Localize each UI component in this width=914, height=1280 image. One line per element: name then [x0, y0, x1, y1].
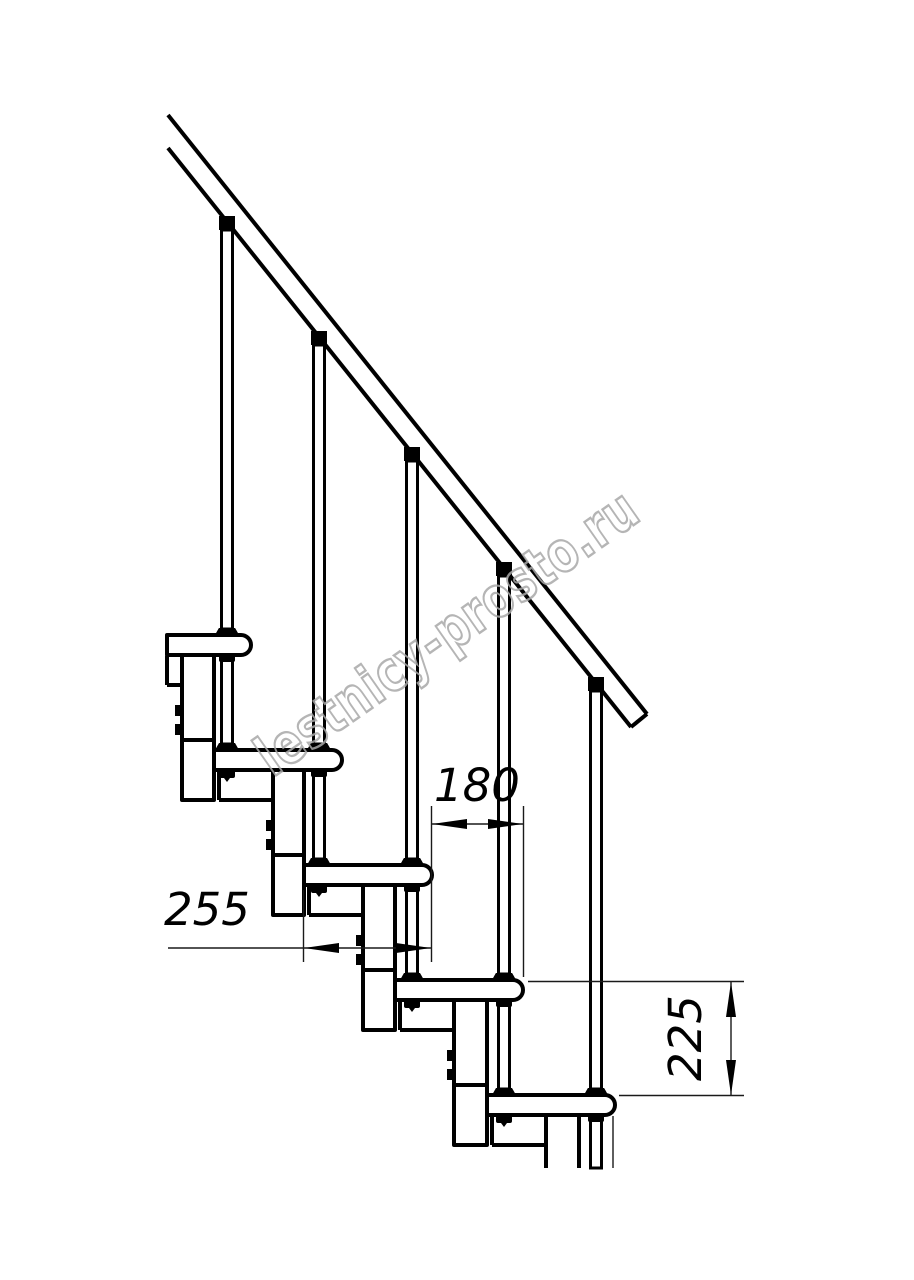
baluster-4 — [492, 562, 516, 1127]
baluster-1 — [215, 216, 239, 782]
baluster-2 — [307, 331, 331, 897]
dimension-run-label: 180 — [434, 759, 520, 812]
tread-5 — [487, 1095, 615, 1115]
tread-4 — [395, 980, 523, 1000]
support-module-3 — [309, 885, 395, 1030]
baluster-3 — [400, 447, 424, 1012]
dimension-riser: 225 — [528, 982, 744, 1096]
drawing-canvas: 180 255 225 lestnicy-prosto.ru — [0, 0, 914, 1280]
dimension-riser-label: 225 — [659, 995, 712, 1081]
support-module-1 — [167, 655, 214, 800]
support-module-4 — [400, 1000, 487, 1145]
tread-3 — [304, 865, 432, 885]
staircase-drawing: 180 255 225 lestnicy-prosto.ru — [0, 0, 914, 1280]
dimension-tread-depth-label: 255 — [164, 883, 250, 936]
tread-1 — [167, 635, 251, 655]
